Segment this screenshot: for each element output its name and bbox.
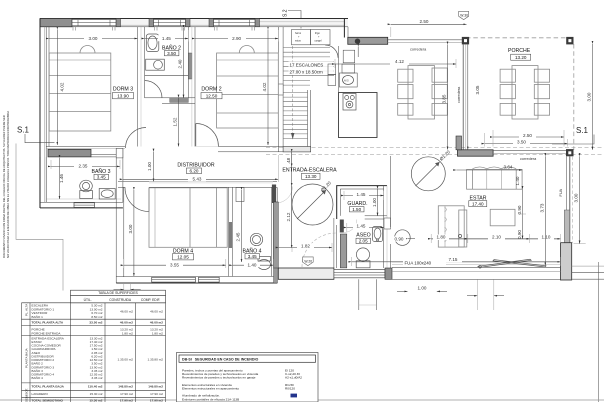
svg-text:NO VALIDO PARA LA EJECUCION DE: NO VALIDO PARA LA EJECUCION DE OBRA SIN … xyxy=(6,111,10,258)
svg-text:2.35: 2.35 xyxy=(79,164,88,169)
svg-text:LAVO: LAVO xyxy=(343,80,349,83)
svg-text:2.90: 2.90 xyxy=(232,36,241,41)
svg-text:PORCHE: PORCHE xyxy=(508,48,531,54)
svg-text:4.02: 4.02 xyxy=(60,82,65,91)
svg-text:110.40 m2: 110.40 m2 xyxy=(88,385,103,389)
svg-text:4.12: 4.12 xyxy=(395,59,404,64)
svg-text:CONSTRUIDA: CONSTRUIDA xyxy=(109,298,132,302)
svg-text:1.45: 1.45 xyxy=(162,36,171,41)
svg-text:Revestimientos de paredes y te: Revestimientos de paredes y techos/suelo… xyxy=(182,376,256,380)
svg-text:Elementos estructurales en apa: Elementos estructurales en aparcamiento xyxy=(182,386,239,390)
svg-text:148.80 m2: 148.80 m2 xyxy=(118,385,133,389)
svg-text:ENTRADA-ESCALERA: ENTRADA-ESCALERA xyxy=(282,167,337,173)
svg-text:3.00: 3.00 xyxy=(128,224,133,233)
svg-text:TOTAL PLANTA ALTA: TOTAL PLANTA ALTA xyxy=(32,320,64,324)
svg-text:33.50 m2: 33.50 m2 xyxy=(89,320,102,324)
svg-text:2.10: 2.10 xyxy=(492,235,501,240)
svg-text:0.90: 0.90 xyxy=(517,230,522,239)
svg-text:4.02: 4.02 xyxy=(262,82,267,91)
svg-text:ASEO: ASEO xyxy=(356,232,370,238)
svg-text:1.80: 1.80 xyxy=(437,235,446,240)
svg-text:PORCHE ENTRADA: PORCHE ENTRADA xyxy=(32,331,62,335)
svg-text:TOTAL SEMISOTANO: TOTAL SEMISOTANO xyxy=(32,399,64,402)
svg-text:3.00: 3.00 xyxy=(574,193,579,202)
svg-text:congel: congel xyxy=(315,40,323,43)
svg-text:17.90 m2: 17.90 m2 xyxy=(150,392,163,396)
svg-text:3.45: 3.45 xyxy=(248,254,257,259)
svg-text:17.90 m2: 17.90 m2 xyxy=(120,392,133,396)
svg-text:1.45: 1.45 xyxy=(357,224,366,229)
svg-text:LAVADERO: LAVADERO xyxy=(32,392,49,396)
svg-text:FUA 100x240: FUA 100x240 xyxy=(405,260,432,265)
svg-text:46.00 m2: 46.00 m2 xyxy=(120,320,133,324)
svg-text:S.1: S.1 xyxy=(576,126,589,135)
svg-text:3.50: 3.50 xyxy=(517,139,526,144)
svg-text:27.00 x 18.50cm: 27.00 x 18.50cm xyxy=(290,70,324,75)
svg-text:1.35.00 m2: 1.35.00 m2 xyxy=(118,358,134,362)
svg-text:3.50: 3.50 xyxy=(167,51,176,56)
svg-text:5.43: 5.43 xyxy=(193,176,202,181)
svg-text:12.05: 12.05 xyxy=(177,255,189,260)
svg-text:FUA: FUA xyxy=(559,188,563,196)
svg-text:2.40: 2.40 xyxy=(178,59,183,68)
svg-text:1.52: 1.52 xyxy=(173,117,178,126)
svg-text:2.45: 2.45 xyxy=(236,232,241,241)
svg-text:1.82: 1.82 xyxy=(301,244,310,249)
svg-text:2.05: 2.05 xyxy=(359,239,368,244)
svg-text:17.90 m2: 17.90 m2 xyxy=(150,399,163,402)
svg-text:7.15: 7.15 xyxy=(449,257,458,262)
svg-text:DORM 3: DORM 3 xyxy=(113,87,133,93)
svg-text:BAÑO 4: BAÑO 4 xyxy=(32,375,44,380)
svg-text:COMP. EDIF.: COMP. EDIF. xyxy=(141,298,160,302)
svg-text:1.00: 1.00 xyxy=(372,198,377,207)
svg-text:13.90: 13.90 xyxy=(117,94,129,99)
svg-text:3.73: 3.73 xyxy=(539,203,544,212)
svg-text:Extintores portátiles de efica: Extintores portátiles de eficacia 21A-11… xyxy=(182,397,239,401)
svg-text:R0/120: R0/120 xyxy=(285,386,295,390)
svg-text:3.45 m2: 3.45 m2 xyxy=(91,376,102,380)
svg-text:0.90: 0.90 xyxy=(395,237,404,242)
svg-text:17 ESCALONES: 17 ESCALONES xyxy=(290,63,324,68)
svg-text:corredera: corredera xyxy=(457,86,461,103)
svg-text:46.00 m2: 46.00 m2 xyxy=(120,310,133,314)
svg-text:3.00: 3.00 xyxy=(89,36,98,41)
svg-text:1.46: 1.46 xyxy=(59,174,64,183)
svg-text:PLANTA BAJA: PLANTA BAJA xyxy=(25,348,29,368)
svg-text:micro: micro xyxy=(295,40,302,43)
svg-text:SEMISOT.: SEMISOT. xyxy=(25,388,29,402)
svg-text:3.05: 3.05 xyxy=(475,85,480,94)
svg-text:1.50: 1.50 xyxy=(352,207,361,212)
svg-text:1.00: 1.00 xyxy=(147,162,152,171)
svg-text:1.80 m2: 1.80 m2 xyxy=(152,331,163,335)
svg-text:DORM 2: DORM 2 xyxy=(201,87,221,93)
svg-text:corredera: corredera xyxy=(410,48,427,52)
svg-text:1.40: 1.40 xyxy=(248,262,257,267)
svg-text:2.50: 2.50 xyxy=(523,133,532,138)
svg-text:12.50: 12.50 xyxy=(206,94,218,99)
svg-text:15.30 m2: 15.30 m2 xyxy=(89,399,102,402)
svg-text:17.40: 17.40 xyxy=(472,202,484,207)
svg-text:BAÑO 1: BAÑO 1 xyxy=(32,314,44,319)
svg-text:1.40: 1.40 xyxy=(515,176,520,185)
svg-text:TOTAL PLANTA BAJA: TOTAL PLANTA BAJA xyxy=(32,385,65,389)
svg-text:46.00 m2: 46.00 m2 xyxy=(150,310,163,314)
svg-text:corredera: corredera xyxy=(520,157,537,161)
svg-text:3.00: 3.00 xyxy=(587,92,592,101)
svg-text:W.30: W.30 xyxy=(460,14,468,18)
svg-text:15.30 m2: 15.30 m2 xyxy=(90,392,103,396)
svg-text:3.64: 3.64 xyxy=(504,165,513,170)
svg-text:13.20: 13.20 xyxy=(515,55,527,60)
svg-text:46.00 m2: 46.00 m2 xyxy=(150,320,163,324)
svg-text:W.20: W.20 xyxy=(304,259,312,263)
svg-text:3.85: 3.85 xyxy=(442,94,447,103)
svg-text:3.45: 3.45 xyxy=(97,175,106,180)
svg-text:A2-s1,d0/A2: A2-s1,d0/A2 xyxy=(285,376,302,380)
svg-text:1.10: 1.10 xyxy=(542,235,551,240)
svg-text:DISTRIBUIDOR: DISTRIBUIDOR xyxy=(177,162,214,168)
svg-text:.48: .48 xyxy=(286,157,291,163)
svg-text:DOCUMENTO VISADO CON FIRMA DIG: DOCUMENTO VISADO CON FIRMA DIGITAL DEL C… xyxy=(2,115,6,258)
svg-text:17.90 m2: 17.90 m2 xyxy=(120,399,133,402)
svg-text:TABLA DE SUPERFICIES: TABLA DE SUPERFICIES xyxy=(98,291,138,295)
svg-text:149.80 m2: 149.80 m2 xyxy=(148,385,163,389)
svg-text:DB-SI SEGURIDAD EN CASO DE I: DB-SI SEGURIDAD EN CASO DE INCENDIO xyxy=(182,357,258,361)
svg-text:S.1: S.1 xyxy=(17,126,30,135)
svg-text:13.30: 13.30 xyxy=(305,174,317,179)
svg-text:1.00: 1.00 xyxy=(418,286,427,291)
svg-text:1.45: 1.45 xyxy=(357,192,366,197)
svg-text:S.2: S.2 xyxy=(283,9,289,17)
svg-text:8.50 m2: 8.50 m2 xyxy=(91,315,102,319)
svg-text:0.90: 0.90 xyxy=(517,205,522,214)
svg-text:3.55: 3.55 xyxy=(170,262,179,267)
svg-text:6.20: 6.20 xyxy=(190,169,199,174)
svg-text:2.12: 2.12 xyxy=(286,212,291,221)
svg-text:PL. ALTA: PL. ALTA xyxy=(25,304,29,316)
svg-text:2.50: 2.50 xyxy=(420,19,429,24)
svg-text:1.80 m2: 1.80 m2 xyxy=(122,331,133,335)
svg-text:1.35.80 m2: 1.35.80 m2 xyxy=(148,358,164,362)
svg-text:ÚTIL.: ÚTIL. xyxy=(84,298,92,302)
